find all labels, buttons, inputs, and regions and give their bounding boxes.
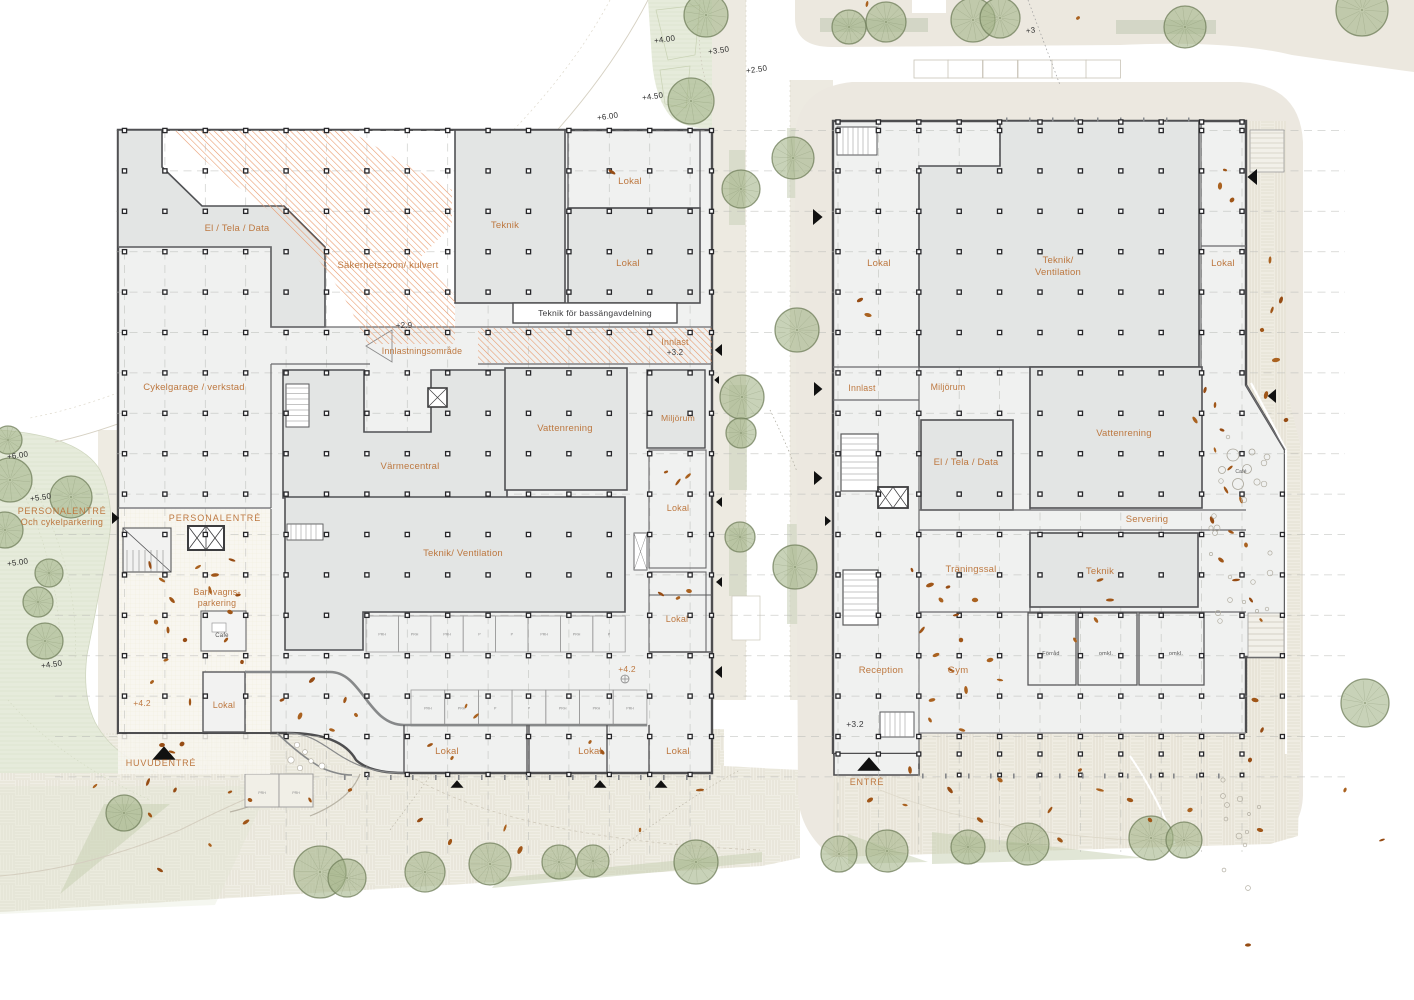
svg-text:PRH: PRH [458, 706, 466, 710]
svg-text:Vattenrening: Vattenrening [537, 423, 593, 434]
svg-text:PERSONALENTRÉ: PERSONALENTRÉ [18, 506, 107, 516]
svg-text:Barnvagns-: Barnvagns- [194, 587, 241, 597]
svg-text:Cafe: Cafe [215, 633, 229, 639]
svg-text:Lokal: Lokal [213, 700, 236, 710]
svg-text:Innlast: Innlast [661, 337, 689, 347]
svg-text:parkering: parkering [198, 598, 236, 608]
svg-text:+3.2: +3.2 [846, 719, 864, 729]
svg-text:PRH: PRH [573, 632, 581, 636]
svg-text:Lokal: Lokal [666, 746, 690, 757]
svg-text:+3: +3 [1025, 25, 1036, 35]
svg-text:Lokal: Lokal [578, 746, 602, 757]
svg-text:Lokal: Lokal [666, 614, 689, 624]
svg-text:PRH: PRH [424, 706, 432, 710]
svg-text:PRH: PRH [292, 791, 300, 795]
svg-text:+2.9: +2.9 [396, 321, 413, 330]
svg-text:+4.2: +4.2 [133, 698, 151, 708]
svg-text:Träningssal: Träningssal [946, 564, 997, 575]
svg-text:El / Tela / Data: El / Tela / Data [934, 457, 999, 468]
svg-text:Innlast: Innlast [848, 383, 876, 393]
svg-text:Miljörum: Miljörum [931, 382, 966, 392]
svg-text:Lokal: Lokal [618, 176, 642, 187]
svg-text:Vattenrening: Vattenrening [1096, 428, 1152, 439]
svg-text:PRH: PRH [411, 632, 419, 636]
svg-text:PRH: PRH [559, 706, 567, 710]
svg-text:Lokal: Lokal [1211, 258, 1235, 269]
svg-text:Reception: Reception [859, 665, 904, 676]
svg-text:omkl.: omkl. [1169, 651, 1183, 657]
svg-text:Lokal: Lokal [667, 503, 690, 513]
svg-text:PRH: PRH [593, 706, 601, 710]
svg-text:Miljörum: Miljörum [661, 413, 695, 423]
svg-text:Förråd: Förråd [1042, 650, 1059, 657]
svg-text:Teknik/ Ventilation: Teknik/ Ventilation [423, 548, 503, 559]
svg-text:Säkerhetszoon/ kulvert: Säkerhetszoon/ kulvert [337, 260, 438, 271]
svg-text:Teknik: Teknik [1086, 566, 1114, 577]
svg-text:PRH: PRH [443, 632, 451, 636]
svg-text:Lokal: Lokal [435, 746, 459, 757]
svg-text:Ventilation: Ventilation [1035, 267, 1081, 278]
svg-text:HUVUDENTRÉ: HUVUDENTRÉ [126, 758, 197, 768]
svg-text:El / Tela / Data: El / Tela / Data [205, 223, 270, 234]
svg-text:PERSONALENTRÉ: PERSONALENTRÉ [169, 513, 262, 523]
svg-text:omkl.: omkl. [1099, 651, 1113, 657]
svg-text:ENTRÉ: ENTRÉ [850, 777, 885, 787]
svg-text:Teknik: Teknik [491, 220, 519, 231]
svg-text:Teknik/: Teknik/ [1043, 255, 1074, 266]
svg-text:Lokal: Lokal [616, 258, 640, 269]
svg-text:+4.2: +4.2 [618, 664, 636, 674]
svg-text:PRH: PRH [378, 632, 386, 636]
svg-text:Servering: Servering [1126, 514, 1168, 525]
svg-text:PRH: PRH [540, 632, 548, 636]
svg-text:Café: Café [1235, 469, 1246, 475]
svg-text:PRH: PRH [258, 791, 266, 795]
svg-text:Och cykelparkering: Och cykelparkering [21, 517, 103, 527]
svg-text:+3.2: +3.2 [667, 348, 684, 357]
svg-text:Innlastningsområde: Innlastningsområde [382, 346, 462, 356]
svg-text:Cykelgarage / verkstad: Cykelgarage / verkstad [143, 382, 245, 393]
svg-text:PRH: PRH [626, 706, 634, 710]
svg-text:Gym: Gym [948, 665, 969, 676]
svg-text:Lokal: Lokal [867, 258, 891, 269]
svg-text:Värmecentral: Värmecentral [381, 461, 440, 472]
svg-text:Teknik för bassängavdelning: Teknik för bassängavdelning [538, 308, 652, 318]
